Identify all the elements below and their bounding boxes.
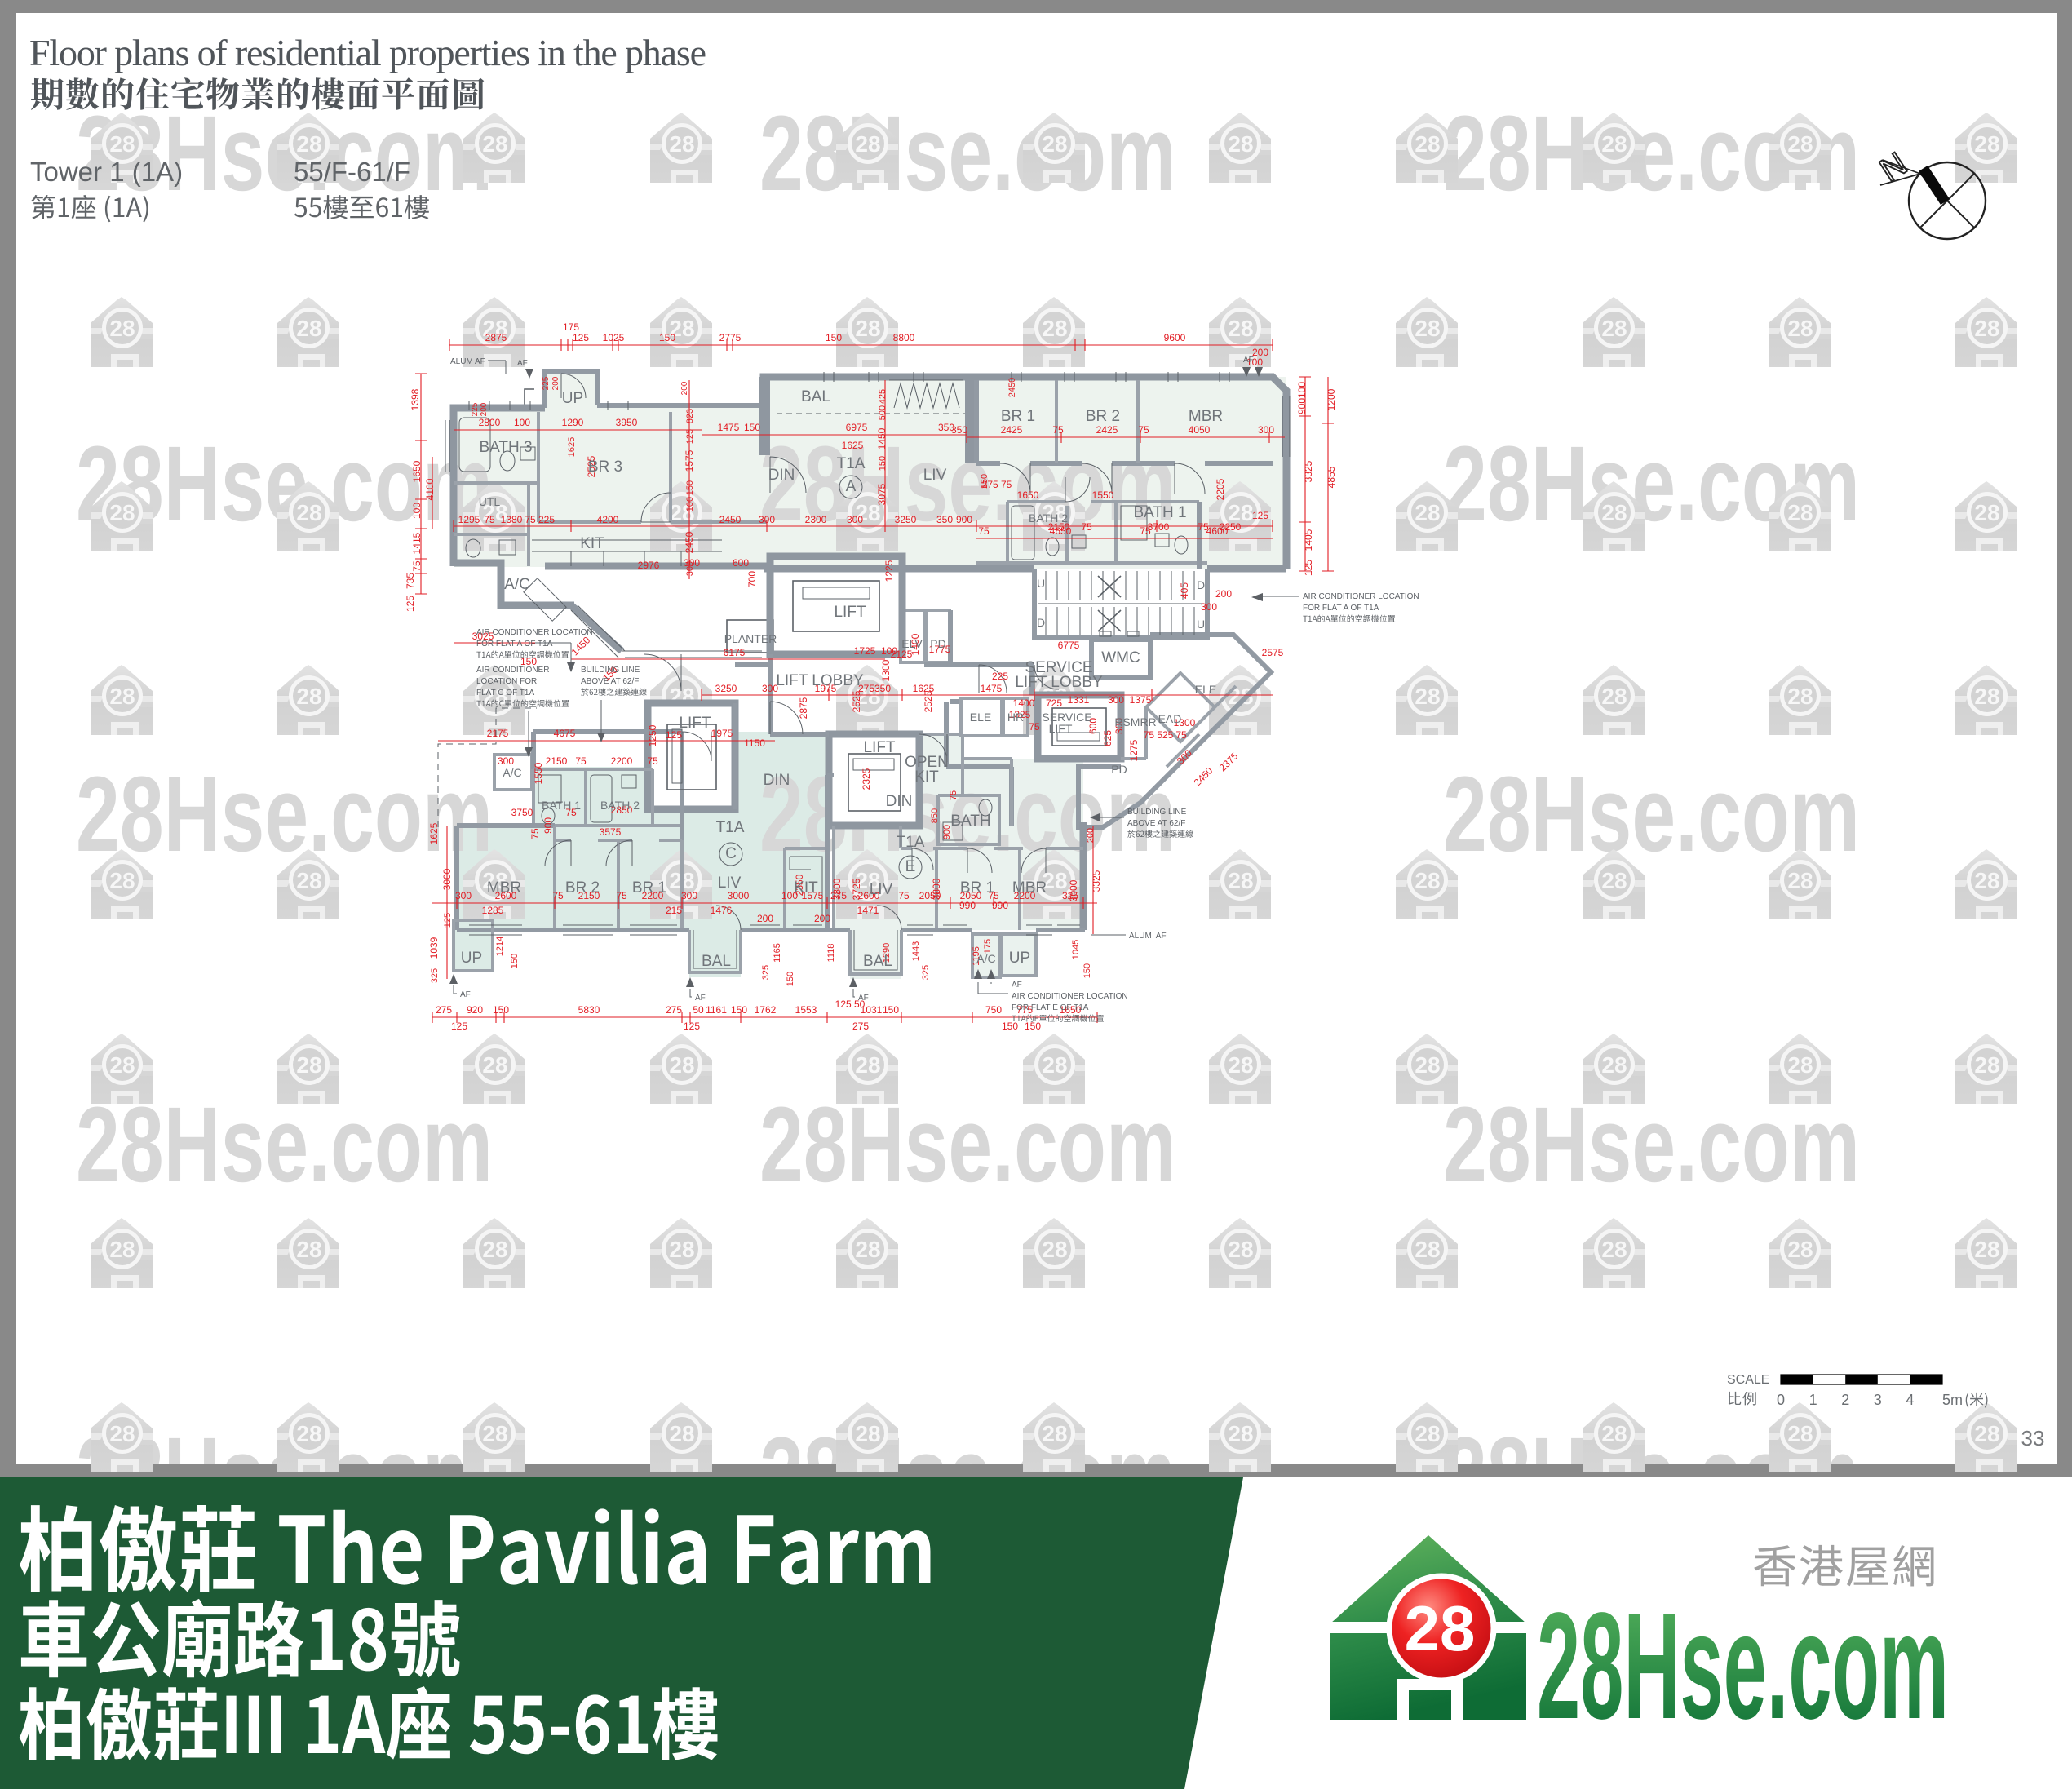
svg-text:200: 200 xyxy=(680,381,689,395)
svg-text:275: 275 xyxy=(852,1021,869,1032)
svg-text:AF: AF xyxy=(695,994,706,1003)
svg-text:1150: 1150 xyxy=(744,737,765,749)
svg-text:BATH 1: BATH 1 xyxy=(1133,504,1186,521)
svg-text:300: 300 xyxy=(1201,601,1217,613)
svg-text:AF: AF xyxy=(460,990,471,999)
svg-text:125: 125 xyxy=(573,332,589,343)
svg-text:100: 100 xyxy=(685,497,695,511)
svg-text:2875: 2875 xyxy=(485,332,507,343)
svg-text:1450: 1450 xyxy=(876,427,888,449)
svg-text:1200: 1200 xyxy=(1326,388,1337,410)
svg-text:LIFT LOBBY: LIFT LOBBY xyxy=(1015,674,1103,691)
svg-text:DIN: DIN xyxy=(886,793,913,810)
svg-text:3250: 3250 xyxy=(895,514,917,525)
svg-text:125: 125 xyxy=(443,913,453,928)
svg-text:850: 850 xyxy=(930,808,940,823)
svg-text:1214: 1214 xyxy=(495,937,505,956)
svg-text:735: 735 xyxy=(405,573,416,589)
svg-text:150: 150 xyxy=(685,480,695,495)
svg-text:350: 350 xyxy=(951,424,967,436)
svg-text:75: 75 xyxy=(484,514,495,525)
svg-text:225: 225 xyxy=(992,671,1008,682)
svg-text:0: 0 xyxy=(1777,1392,1785,1408)
svg-text:AF: AF xyxy=(1243,356,1254,365)
svg-text:ABOVE AT 62/F: ABOVE AT 62/F xyxy=(1127,819,1185,828)
svg-text:425: 425 xyxy=(878,389,888,404)
svg-text:1443: 1443 xyxy=(911,941,921,961)
svg-text:125: 125 xyxy=(1303,560,1314,576)
svg-text:150: 150 xyxy=(510,954,520,968)
svg-text:1: 1 xyxy=(1809,1392,1817,1408)
svg-text:75: 75 xyxy=(552,890,564,901)
svg-text:1165: 1165 xyxy=(773,943,782,963)
svg-text:2525: 2525 xyxy=(923,690,934,712)
svg-text:75: 75 xyxy=(411,560,423,572)
svg-text:1471: 1471 xyxy=(857,905,879,916)
svg-text:2: 2 xyxy=(1841,1392,1849,1408)
svg-text:900: 900 xyxy=(956,514,972,525)
svg-text:750: 750 xyxy=(985,1004,1002,1016)
svg-text:150: 150 xyxy=(493,1004,509,1016)
svg-text:125: 125 xyxy=(685,429,695,444)
svg-text:125: 125 xyxy=(684,1021,700,1032)
svg-text:75: 75 xyxy=(616,890,627,901)
svg-text:BATH 1: BATH 1 xyxy=(542,799,581,812)
svg-text:2800: 2800 xyxy=(479,417,501,428)
svg-text:75: 75 xyxy=(898,890,910,901)
svg-text:2200: 2200 xyxy=(611,755,633,767)
svg-text:A/C: A/C xyxy=(976,952,995,965)
svg-text:1476: 1476 xyxy=(711,905,733,916)
svg-text:1295: 1295 xyxy=(458,514,480,525)
svg-text:2575: 2575 xyxy=(1262,647,1284,658)
svg-text:WMC: WMC xyxy=(1101,649,1140,666)
svg-text:BR 1: BR 1 xyxy=(632,879,666,897)
svg-text:3000: 3000 xyxy=(728,890,750,901)
svg-text:LOCATION FOR: LOCATION FOR xyxy=(476,677,537,686)
svg-text:1475: 1475 xyxy=(981,683,1003,694)
svg-text:D: D xyxy=(1197,578,1205,591)
svg-text:1380: 1380 xyxy=(501,514,523,525)
svg-text:2525: 2525 xyxy=(851,690,862,712)
svg-text:LIV: LIV xyxy=(923,467,947,484)
svg-text:600: 600 xyxy=(733,557,749,569)
svg-text:6775: 6775 xyxy=(1058,640,1080,651)
svg-text:ELE: ELE xyxy=(970,711,991,724)
svg-text:U: U xyxy=(1037,577,1045,590)
svg-text:FOR FLAT A OF T1A: FOR FLAT A OF T1A xyxy=(1303,604,1379,613)
svg-text:AIR CONDITIONER LOCATION: AIR CONDITIONER LOCATION xyxy=(1012,992,1128,1001)
svg-text:1161: 1161 xyxy=(706,1004,727,1016)
svg-text:75: 75 xyxy=(978,525,990,537)
svg-text:75: 75 xyxy=(575,755,587,767)
svg-text:KIT: KIT xyxy=(794,879,818,897)
svg-text:33: 33 xyxy=(2021,1426,2045,1450)
svg-text:1118: 1118 xyxy=(826,944,836,963)
svg-text:LIFT: LIFT xyxy=(1049,722,1073,735)
svg-text:LIFT: LIFT xyxy=(863,739,895,756)
svg-text:1331: 1331 xyxy=(1068,694,1090,706)
svg-text:T1A: T1A xyxy=(837,455,866,472)
svg-text:LIV: LIV xyxy=(718,875,742,892)
svg-text:4050: 4050 xyxy=(1189,424,1211,436)
svg-text:1625: 1625 xyxy=(428,822,440,844)
svg-text:FLAT C OF T1A: FLAT C OF T1A xyxy=(476,689,534,697)
svg-text:900: 900 xyxy=(542,817,554,834)
svg-text:300: 300 xyxy=(847,514,863,525)
svg-text:1553: 1553 xyxy=(795,1004,817,1016)
svg-text:ELE: ELE xyxy=(1195,683,1216,696)
svg-text:300: 300 xyxy=(685,561,695,576)
svg-text:1625: 1625 xyxy=(567,437,577,457)
svg-text:2425: 2425 xyxy=(1096,424,1118,436)
svg-text:PD: PD xyxy=(930,637,945,650)
svg-text:300: 300 xyxy=(759,514,775,525)
svg-text:BUILDING LINE: BUILDING LINE xyxy=(581,666,640,675)
svg-text:UP: UP xyxy=(1009,950,1030,967)
svg-text:100: 100 xyxy=(411,503,423,519)
svg-text:6175: 6175 xyxy=(724,647,746,658)
svg-text:Floor plans of residential pro: Floor plans of residential properties in… xyxy=(29,32,706,73)
svg-text:A/C: A/C xyxy=(504,576,530,593)
svg-text:625: 625 xyxy=(1102,730,1113,746)
svg-text:A: A xyxy=(846,478,857,495)
svg-text:2205: 2205 xyxy=(1215,478,1226,500)
svg-text:MBR: MBR xyxy=(487,879,521,897)
svg-text:KIT: KIT xyxy=(580,535,604,552)
svg-text:EAD: EAD xyxy=(1158,712,1182,725)
svg-text:225: 225 xyxy=(471,402,480,416)
svg-text:BUILDING LINE: BUILDING LINE xyxy=(1127,808,1187,817)
svg-text:2875: 2875 xyxy=(798,697,809,719)
svg-text:4855: 4855 xyxy=(1326,466,1337,488)
svg-text:5m: 5m xyxy=(1942,1392,1963,1408)
svg-text:KIT: KIT xyxy=(914,768,939,786)
svg-text:1045: 1045 xyxy=(1071,940,1081,959)
svg-text:SCALE: SCALE xyxy=(1727,1373,1769,1387)
svg-text:275: 275 xyxy=(830,890,847,901)
svg-text:2976: 2976 xyxy=(638,560,660,571)
svg-text:325: 325 xyxy=(761,965,771,980)
svg-text:200: 200 xyxy=(1086,828,1096,843)
svg-text:MBR: MBR xyxy=(1189,408,1223,425)
svg-text:300: 300 xyxy=(1108,694,1124,706)
svg-text:990: 990 xyxy=(992,900,1008,911)
svg-text:4: 4 xyxy=(1906,1392,1914,1408)
svg-text:1300: 1300 xyxy=(880,659,892,681)
svg-text:BAL: BAL xyxy=(702,953,731,970)
svg-text:1415: 1415 xyxy=(411,532,423,554)
svg-text:E: E xyxy=(905,858,916,875)
svg-text:3950: 3950 xyxy=(616,417,638,428)
svg-text:1225: 1225 xyxy=(883,560,895,582)
svg-text:405: 405 xyxy=(1179,582,1190,599)
svg-text:C: C xyxy=(725,845,737,862)
svg-text:75: 75 xyxy=(529,828,541,839)
svg-text:RSMRR: RSMRR xyxy=(1114,715,1156,728)
svg-text:BAL: BAL xyxy=(801,388,830,405)
svg-text:2425: 2425 xyxy=(1001,424,1023,436)
svg-text:300: 300 xyxy=(681,890,697,901)
svg-text:AF: AF xyxy=(858,994,869,1003)
svg-text:1039: 1039 xyxy=(428,937,440,959)
svg-text:5830: 5830 xyxy=(578,1004,600,1016)
svg-text:215: 215 xyxy=(666,905,682,916)
svg-text:150: 150 xyxy=(659,332,675,343)
svg-text:BR 2: BR 2 xyxy=(565,879,600,897)
svg-text:150: 150 xyxy=(826,332,842,343)
svg-text:1405: 1405 xyxy=(1303,529,1314,551)
svg-text:U: U xyxy=(1197,618,1205,631)
svg-text:150: 150 xyxy=(878,456,888,471)
svg-text:125: 125 xyxy=(1252,510,1268,521)
svg-text:4200: 4200 xyxy=(597,514,619,525)
svg-text:275: 275 xyxy=(666,1004,682,1016)
svg-text:1031: 1031 xyxy=(861,1004,883,1016)
svg-text:3750: 3750 xyxy=(511,807,533,818)
svg-text:1400: 1400 xyxy=(1013,697,1035,709)
svg-text:BR 1: BR 1 xyxy=(960,879,994,897)
svg-text:75: 75 xyxy=(647,755,658,767)
svg-text:125: 125 xyxy=(451,1021,467,1032)
svg-text:1725: 1725 xyxy=(854,645,876,657)
svg-text:AIR CONDITIONER LOCATION: AIR CONDITIONER LOCATION xyxy=(1303,592,1419,601)
svg-text:AF: AF xyxy=(1012,981,1022,990)
svg-text:2325: 2325 xyxy=(861,768,872,790)
svg-text:500: 500 xyxy=(878,405,888,420)
svg-text:BATH 2: BATH 2 xyxy=(1029,511,1068,525)
svg-text:1762: 1762 xyxy=(755,1004,777,1016)
svg-text:100: 100 xyxy=(881,645,897,657)
svg-text:900: 900 xyxy=(1296,398,1308,414)
svg-text:275: 275 xyxy=(436,1004,452,1016)
svg-text:920: 920 xyxy=(467,1004,483,1016)
svg-text:75: 75 xyxy=(1138,424,1149,436)
svg-text:700: 700 xyxy=(746,571,758,587)
svg-text:DIN: DIN xyxy=(764,772,790,789)
svg-text:BR 3: BR 3 xyxy=(588,458,622,476)
svg-text:175: 175 xyxy=(563,321,579,333)
svg-text:200: 200 xyxy=(551,376,560,390)
svg-text:300: 300 xyxy=(1258,424,1274,436)
svg-text:300: 300 xyxy=(498,755,514,767)
svg-text:BAL: BAL xyxy=(863,953,892,970)
svg-text:225: 225 xyxy=(538,514,555,525)
svg-text:1550: 1550 xyxy=(1092,489,1114,501)
svg-text:T1A: T1A xyxy=(716,819,745,836)
svg-text:1650: 1650 xyxy=(411,460,423,482)
svg-text:990: 990 xyxy=(959,900,976,911)
svg-text:FOR FLAT A OF T1A: FOR FLAT A OF T1A xyxy=(476,640,553,649)
svg-text:3325: 3325 xyxy=(1091,870,1102,892)
svg-text:200: 200 xyxy=(1215,588,1232,600)
svg-text:UP: UP xyxy=(562,390,583,407)
svg-text:1550: 1550 xyxy=(533,762,544,784)
svg-text:UP: UP xyxy=(461,950,482,967)
svg-text:D: D xyxy=(1037,616,1045,629)
svg-text:1625: 1625 xyxy=(842,440,864,451)
svg-text:75: 75 xyxy=(1198,521,1209,533)
svg-text:150: 150 xyxy=(883,1004,899,1016)
svg-text:3250: 3250 xyxy=(715,683,737,694)
svg-text:28Hse.com: 28Hse.com xyxy=(1537,1582,1949,1751)
svg-text:3700: 3700 xyxy=(1148,521,1170,533)
svg-text:BATH 3: BATH 3 xyxy=(479,439,532,456)
svg-text:PLANTER: PLANTER xyxy=(724,632,777,645)
svg-text:75: 75 xyxy=(1175,729,1187,741)
svg-text:350: 350 xyxy=(936,514,953,525)
svg-text:75: 75 xyxy=(1081,521,1092,533)
svg-text:1290: 1290 xyxy=(562,417,584,428)
svg-text:HR: HR xyxy=(1007,711,1024,724)
svg-text:4675: 4675 xyxy=(554,728,576,739)
svg-text:200: 200 xyxy=(814,913,830,924)
svg-text:Tower 1 (1A): Tower 1 (1A) xyxy=(30,157,183,187)
svg-text:2150: 2150 xyxy=(546,755,568,767)
svg-text:100: 100 xyxy=(514,417,530,428)
svg-text:75: 75 xyxy=(1052,424,1064,436)
svg-text:1285: 1285 xyxy=(482,905,504,916)
svg-text:150: 150 xyxy=(1025,1021,1041,1032)
svg-text:BR 2: BR 2 xyxy=(1086,408,1120,425)
svg-text:1250: 1250 xyxy=(647,724,658,746)
svg-text:150: 150 xyxy=(731,1004,747,1016)
svg-text:UTL: UTL xyxy=(479,495,501,508)
svg-text:ALUM AF: ALUM AF xyxy=(1129,932,1167,941)
svg-text:1275: 1275 xyxy=(1128,739,1140,761)
svg-text:2450: 2450 xyxy=(1007,378,1017,397)
svg-text:DIN: DIN xyxy=(768,467,795,484)
svg-text:A/C: A/C xyxy=(503,766,521,779)
svg-text:100: 100 xyxy=(1296,382,1308,398)
svg-text:2175: 2175 xyxy=(487,728,509,739)
svg-text:ABOVE AT 62/F: ABOVE AT 62/F xyxy=(581,677,639,686)
svg-text:1975: 1975 xyxy=(711,728,733,739)
svg-text:1375: 1375 xyxy=(1130,694,1152,706)
svg-text:PD: PD xyxy=(1111,763,1127,776)
svg-text:9600: 9600 xyxy=(1164,332,1186,343)
svg-text:2450: 2450 xyxy=(719,514,742,525)
svg-text:1650: 1650 xyxy=(1017,489,1039,501)
svg-text:350: 350 xyxy=(874,683,891,694)
svg-text:2775: 2775 xyxy=(719,332,742,343)
svg-text:1398: 1398 xyxy=(410,388,421,410)
svg-text:LIV: LIV xyxy=(870,881,893,898)
svg-text:8800: 8800 xyxy=(893,332,915,343)
svg-text:325: 325 xyxy=(921,965,931,980)
svg-text:225: 225 xyxy=(542,376,551,390)
svg-text:3075: 3075 xyxy=(876,483,888,505)
svg-text:50: 50 xyxy=(693,1004,704,1016)
svg-text:1025: 1025 xyxy=(603,332,625,343)
svg-text:LIFT LOBBY: LIFT LOBBY xyxy=(776,672,864,689)
svg-text:ALUM AF: ALUM AF xyxy=(450,357,485,366)
svg-text:LIFT: LIFT xyxy=(834,604,866,621)
svg-text:LIFT: LIFT xyxy=(679,715,711,732)
svg-text:ELV: ELV xyxy=(901,637,923,650)
svg-text:MBR: MBR xyxy=(1012,879,1047,897)
svg-text:2300: 2300 xyxy=(805,514,827,525)
svg-text:75: 75 xyxy=(525,514,536,525)
svg-text:325: 325 xyxy=(1062,890,1078,901)
svg-text:150: 150 xyxy=(744,422,760,433)
svg-text:3575: 3575 xyxy=(600,826,622,838)
svg-text:725: 725 xyxy=(1046,697,1062,709)
svg-text:AIR CONDITIONER: AIR CONDITIONER xyxy=(476,666,549,675)
svg-text:6975: 6975 xyxy=(846,422,868,433)
svg-text:BR 1: BR 1 xyxy=(1001,408,1035,425)
svg-text:AF: AF xyxy=(517,359,528,368)
svg-text:2250: 2250 xyxy=(1220,521,1242,533)
svg-text:300: 300 xyxy=(455,890,472,901)
svg-text:200: 200 xyxy=(757,913,773,924)
svg-text:BATH 2: BATH 2 xyxy=(600,799,640,812)
svg-text:75: 75 xyxy=(1029,721,1040,733)
svg-text:3: 3 xyxy=(1874,1392,1882,1408)
svg-text:150: 150 xyxy=(786,972,795,986)
svg-text:125: 125 xyxy=(405,596,416,612)
svg-text:AIR CONDITIONER LOCATION: AIR CONDITIONER LOCATION xyxy=(476,628,593,637)
svg-text:275 75: 275 75 xyxy=(982,479,1012,490)
svg-text:75: 75 xyxy=(949,790,959,800)
svg-text:1475: 1475 xyxy=(718,422,740,433)
svg-text:3325: 3325 xyxy=(1303,460,1314,482)
svg-text:150: 150 xyxy=(1002,1021,1018,1032)
svg-text:325: 325 xyxy=(430,968,440,983)
svg-text:FOR FLAT E OF T1A: FOR FLAT E OF T1A xyxy=(1012,1003,1089,1012)
svg-text:55/F-61/F: 55/F-61/F xyxy=(294,157,410,187)
svg-text:BATH: BATH xyxy=(950,813,990,830)
svg-text:75 525: 75 525 xyxy=(1144,729,1174,741)
svg-text:28: 28 xyxy=(1405,1592,1476,1664)
svg-text:823: 823 xyxy=(685,409,695,423)
svg-text:200: 200 xyxy=(480,402,489,416)
svg-text:2050: 2050 xyxy=(919,890,941,901)
svg-text:T1A: T1A xyxy=(897,834,925,851)
svg-text:150: 150 xyxy=(1082,963,1092,978)
svg-text:4100: 4100 xyxy=(424,478,436,500)
